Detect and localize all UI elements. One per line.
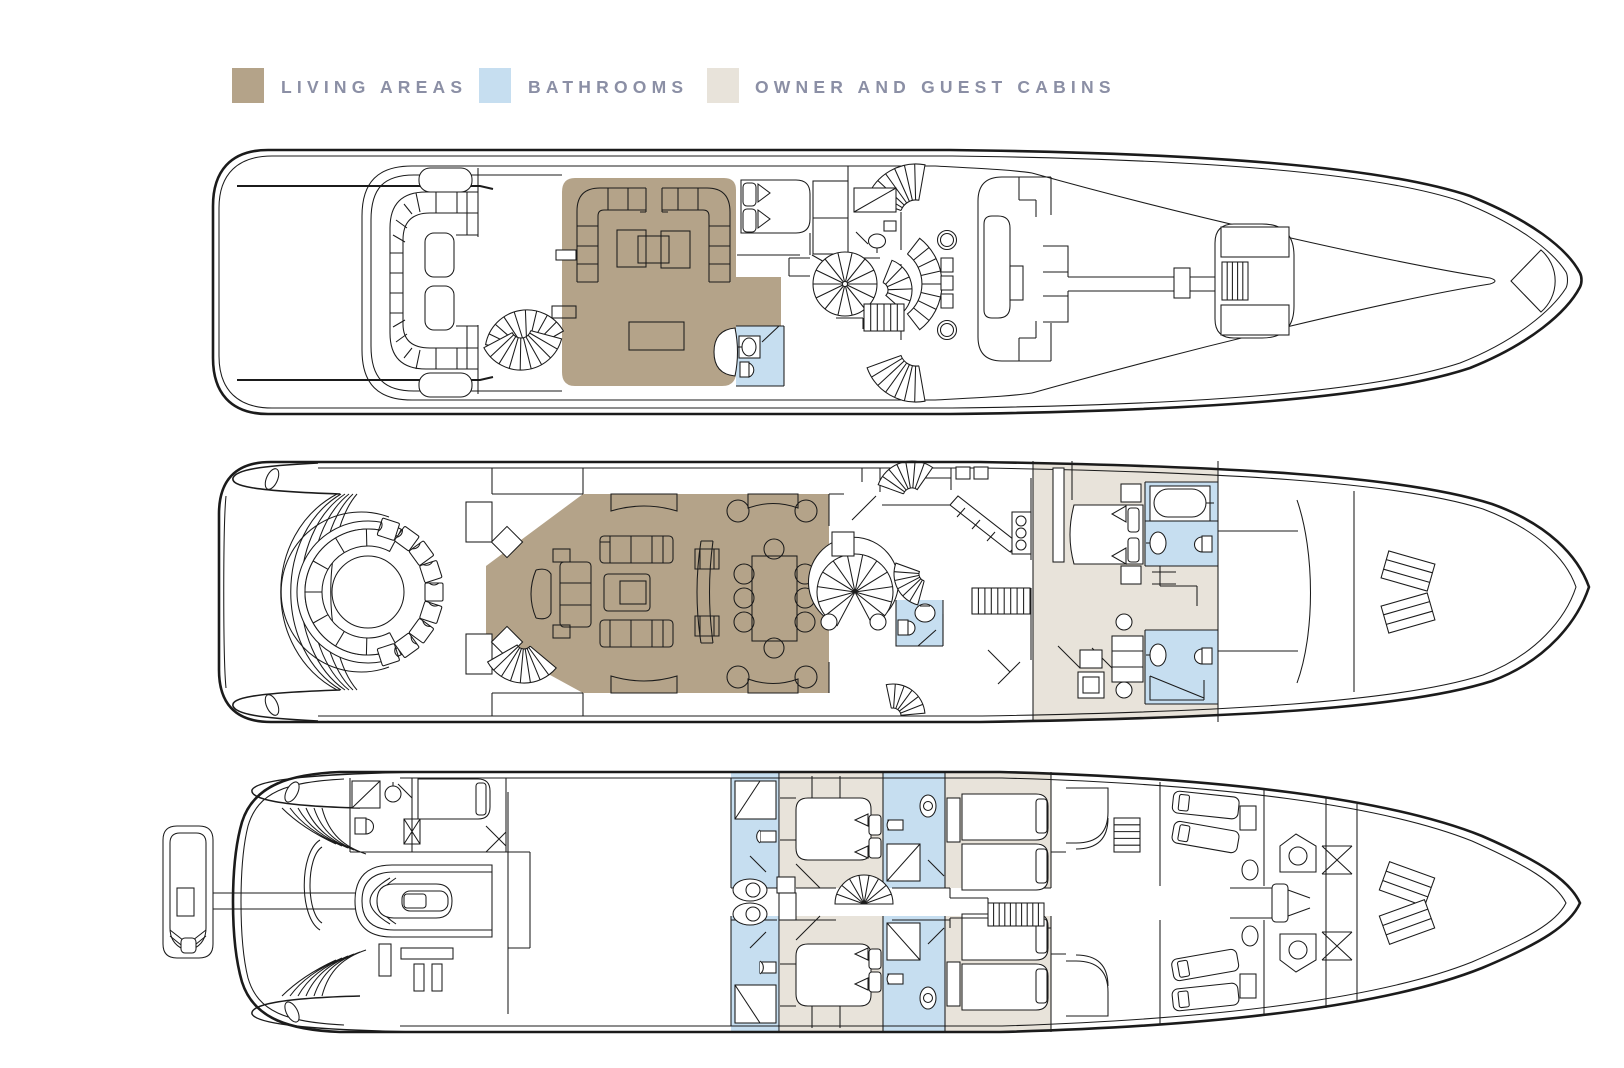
svg-text:OWNER AND GUEST CABINS: OWNER AND GUEST CABINS [755, 77, 1116, 97]
svg-text:BATHROOMS: BATHROOMS [528, 77, 688, 97]
svg-text:LIVING AREAS: LIVING AREAS [281, 77, 467, 97]
